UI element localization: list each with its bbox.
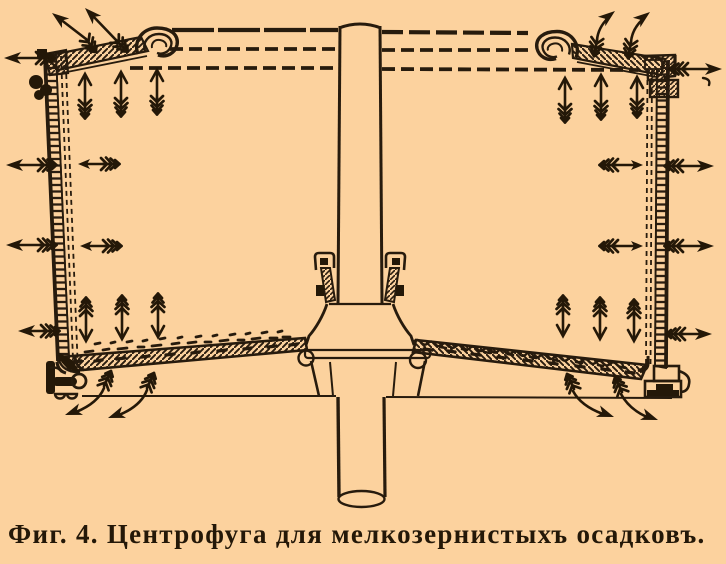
svg-text:Фиг. 4. Центрофуга для мелкозе: Фиг. 4. Центрофуга для мелкозернистыхъ о… bbox=[8, 519, 706, 549]
